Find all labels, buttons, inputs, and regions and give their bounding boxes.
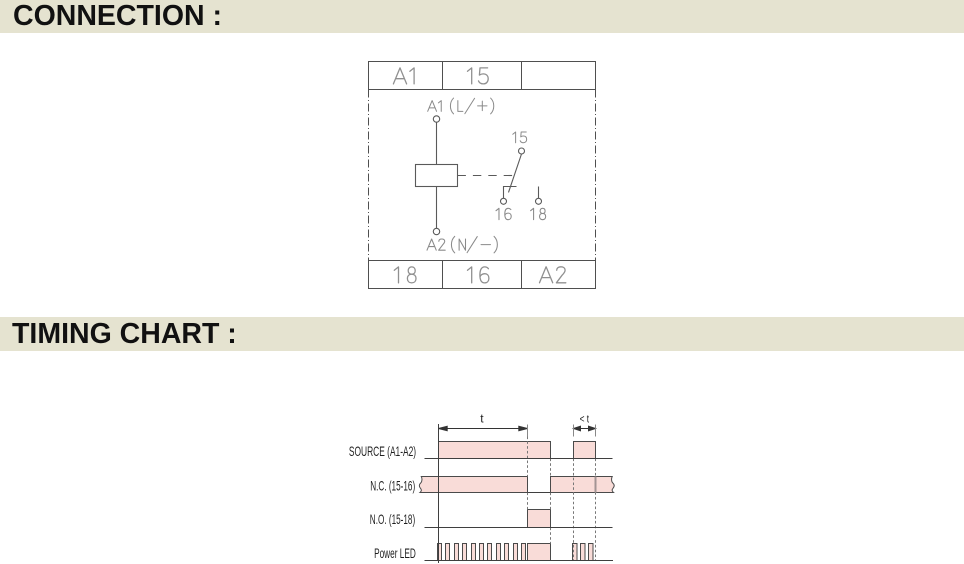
svg-text:SOURCE (A1-A2): SOURCE (A1-A2) <box>349 443 416 459</box>
svg-text:t: t <box>480 411 484 425</box>
svg-text:< t: < t <box>580 413 590 425</box>
svg-text:N.C. (15-16): N.C. (15-16) <box>370 477 415 493</box>
svg-text:N.O. (15-18): N.O. (15-18) <box>370 511 415 527</box>
svg-text:Power LED: Power LED <box>374 545 416 561</box>
